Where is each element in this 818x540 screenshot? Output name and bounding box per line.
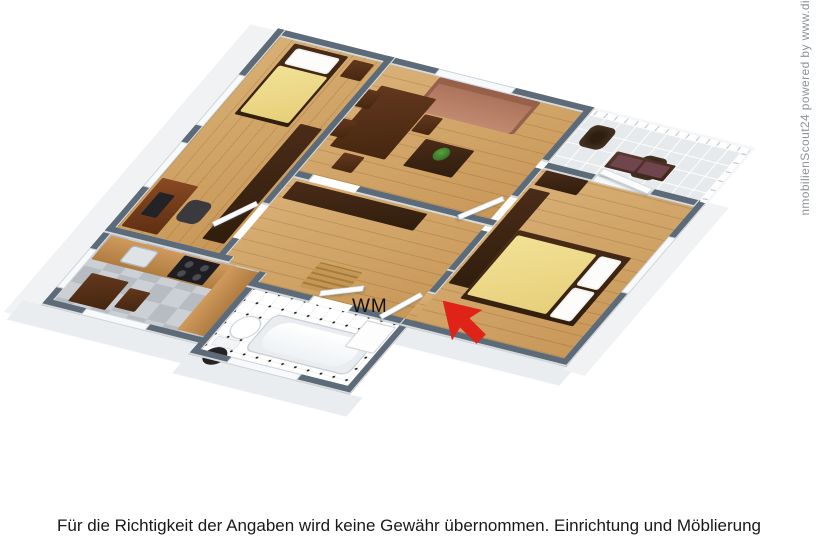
floorplan-page: WM ImmobilienScout24 powered by www.di F… — [0, 0, 818, 540]
watermark: ImmobilienScout24 powered by www.di — [798, 0, 814, 215]
disclaimer-text: Für die Richtigkeit der Angaben wird kei… — [0, 516, 818, 536]
wm-label: WM — [352, 296, 388, 318]
watermark-text: ImmobilienScout24 powered by www.di — [798, 0, 812, 215]
entrance-arrow-icon — [438, 296, 494, 352]
apartment-3d-floorplan — [40, 37, 741, 432]
